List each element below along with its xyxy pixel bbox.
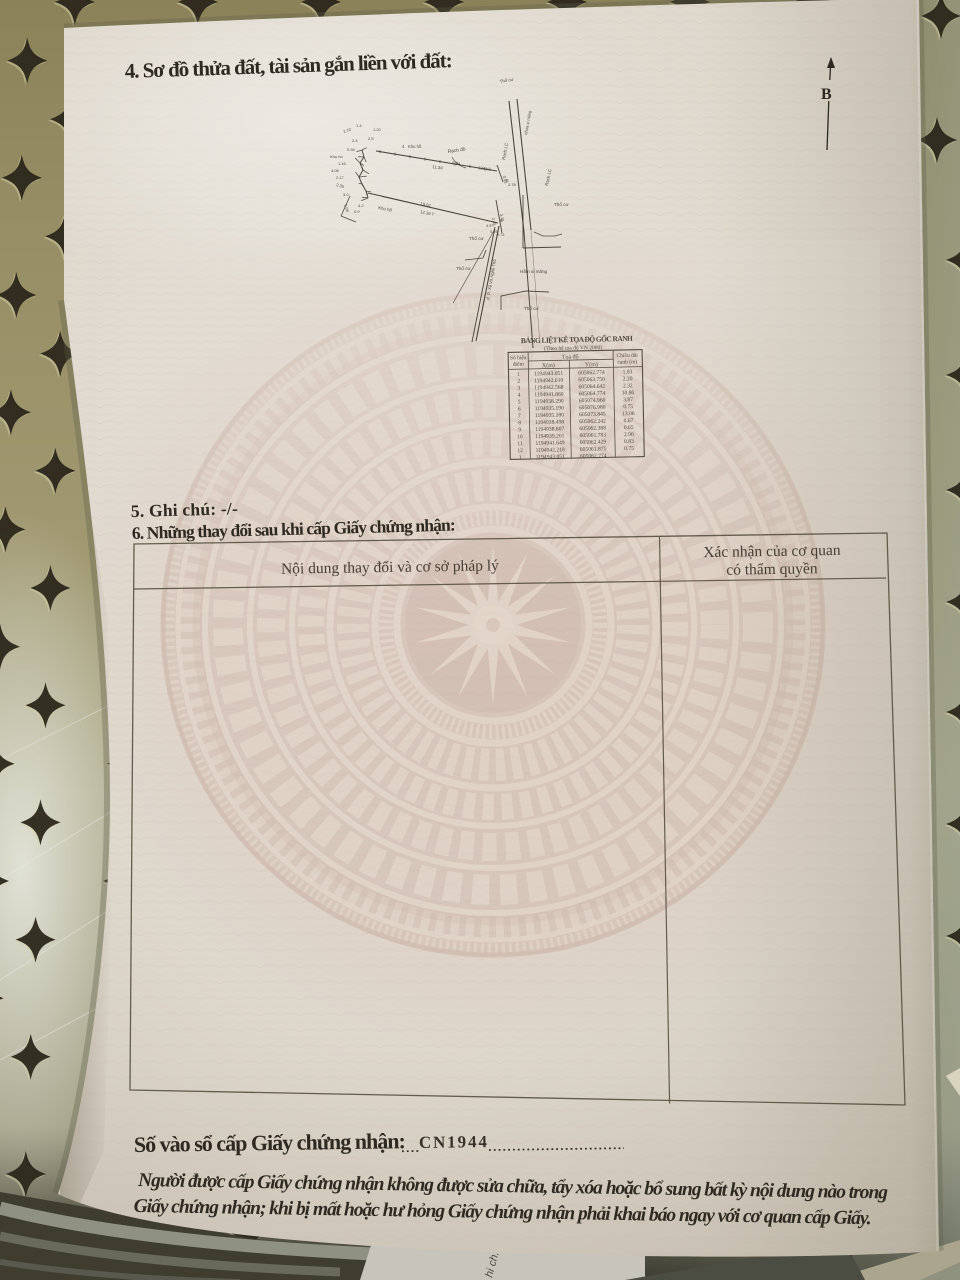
svg-text:1194935.180: 1194935.180	[535, 412, 564, 419]
svg-text:1194941.860: 1194941.860	[534, 392, 563, 399]
svg-text:605062.242: 605062.242	[579, 419, 606, 426]
svg-text:1194938.290: 1194938.290	[534, 399, 563, 406]
svg-text:1: 1	[517, 372, 520, 378]
svg-text:605074.960: 605074.960	[579, 398, 606, 405]
svg-text:11: 11	[517, 441, 523, 447]
svg-text:Thổ cư: Thổ cư	[469, 235, 484, 241]
svg-text:4: 4	[518, 393, 521, 399]
svg-text:Khu hồ: Khu hồ	[330, 154, 343, 159]
svg-text:1.4: 1.4	[356, 123, 362, 128]
svg-text:1194941.649: 1194941.649	[535, 440, 564, 447]
svg-text:2.17: 2.17	[336, 175, 345, 180]
svg-text:2.78: 2.78	[508, 182, 517, 187]
svg-text:1194942.610: 1194942.610	[534, 378, 563, 385]
svg-text:2.5: 2.5	[368, 136, 374, 141]
svg-text:1194942.218: 1194942.218	[536, 447, 565, 454]
svg-text:2.32: 2.32	[623, 383, 633, 389]
svg-text:605062.774: 605062.774	[580, 453, 607, 460]
svg-text:Thổ cư: Thổ cư	[524, 305, 539, 311]
svg-text:1.16: 1.16	[338, 161, 347, 166]
svg-text:5. Ghi chú: -/-: 5. Ghi chú: -/-	[131, 498, 239, 521]
svg-text:Chiều dài: Chiều dài	[616, 352, 638, 359]
svg-text:605061.875: 605061.875	[580, 446, 607, 453]
svg-text:605064.642: 605064.642	[578, 384, 605, 391]
svg-text:Tọa độ: Tọa độ	[562, 354, 579, 360]
svg-text:5: 5	[518, 399, 521, 405]
svg-text:B: B	[821, 86, 832, 103]
svg-text:1: 1	[519, 455, 522, 461]
svg-text:3: 3	[517, 386, 520, 392]
svg-text:2.20: 2.20	[623, 376, 633, 382]
svg-text:0.75: 0.75	[624, 446, 634, 452]
svg-text:605073.845: 605073.845	[579, 412, 606, 419]
svg-text:4.06: 4.06	[331, 168, 340, 173]
svg-text:12: 12	[517, 448, 523, 454]
svg-text:605062.774: 605062.774	[578, 370, 605, 377]
svg-text:10.80: 10.80	[622, 390, 635, 396]
svg-text:1.83: 1.83	[623, 369, 633, 375]
svg-text:4.97: 4.97	[486, 224, 493, 228]
svg-text:điểm: điểm	[513, 361, 525, 368]
svg-text:4.2: 4.2	[358, 203, 364, 208]
svg-text:3.0: 3.0	[343, 192, 349, 197]
svg-text:Nội dung thay đổi và cơ sở phá: Nội dung thay đổi và cơ sở pháp lý	[281, 557, 499, 577]
svg-text:605076.980: 605076.980	[579, 405, 606, 412]
svg-text:0.65: 0.65	[624, 425, 634, 431]
svg-text:3.87: 3.87	[623, 397, 633, 403]
svg-text:605064.774: 605064.774	[579, 391, 606, 398]
svg-text:Y(m): Y(m)	[585, 361, 598, 368]
svg-text:1194939.201: 1194939.201	[535, 433, 564, 440]
svg-text:có thẩm quyền: có thẩm quyền	[726, 560, 818, 578]
svg-text:Số vào sổ cấp Giấy chứng nhận:: Số vào sổ cấp Giấy chứng nhận:	[134, 1128, 406, 1157]
svg-text:9: 9	[518, 427, 521, 433]
svg-text:6: 6	[518, 406, 521, 412]
svg-text:0.67: 0.67	[624, 418, 634, 424]
svg-text:Thổ cư: Thổ cư	[554, 201, 569, 207]
svg-text:1194938.807: 1194938.807	[535, 426, 564, 433]
svg-text:605062.429: 605062.429	[580, 439, 607, 446]
svg-text:0.9: 0.9	[354, 209, 360, 214]
svg-text:Khu hồ: Khu hồ	[408, 144, 422, 149]
svg-text:1194943.051: 1194943.051	[534, 371, 563, 378]
svg-text:1194938.498: 1194938.498	[535, 419, 564, 426]
svg-text:2.4: 2.4	[352, 138, 358, 143]
svg-text:605063.750: 605063.750	[578, 377, 605, 384]
svg-text:2.90: 2.90	[624, 432, 634, 438]
svg-text:0.83: 0.83	[624, 439, 634, 445]
svg-text:Hầm xi măng: Hầm xi măng	[520, 269, 548, 274]
svg-text:Xác nhận của cơ quan: Xác nhận của cơ quan	[703, 542, 841, 561]
svg-text:1.20: 1.20	[373, 127, 382, 132]
svg-text:0.94: 0.94	[347, 147, 356, 152]
svg-text:Số hiệu: Số hiệu	[510, 354, 527, 361]
svg-text:605061.783: 605061.783	[580, 432, 607, 439]
svg-text:1194935.190: 1194935.190	[535, 406, 564, 413]
svg-text:1194943.051: 1194943.051	[536, 454, 565, 461]
svg-text:10: 10	[517, 434, 523, 440]
svg-text:2: 2	[517, 379, 520, 385]
svg-text:1194942.568: 1194942.568	[534, 385, 563, 392]
svg-text:0.75: 0.75	[623, 404, 633, 410]
svg-text:8: 8	[518, 420, 521, 426]
svg-text:Thổ cư: Thổ cư	[456, 265, 471, 271]
svg-text:13.06: 13.06	[622, 411, 635, 417]
svg-text:cạnh (m): cạnh (m)	[617, 358, 637, 365]
svg-text:X(m): X(m)	[542, 362, 555, 369]
svg-text:9.73: 9.73	[497, 233, 504, 237]
svg-text:7: 7	[518, 413, 521, 419]
svg-text:605062.388: 605062.388	[579, 425, 606, 432]
